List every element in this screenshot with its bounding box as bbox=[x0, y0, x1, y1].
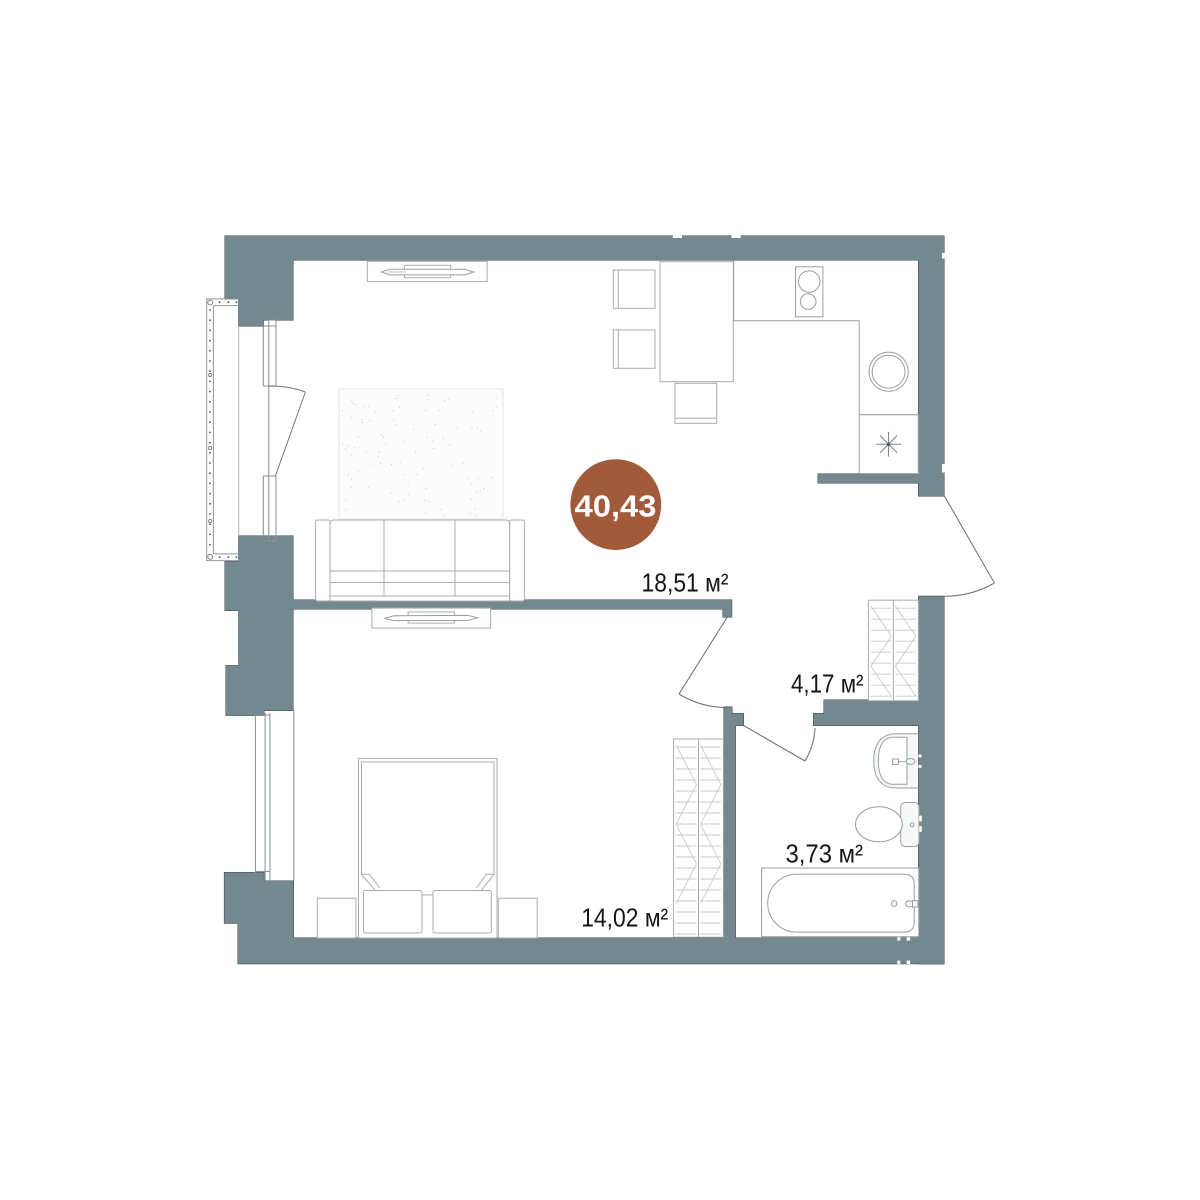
svg-text:3,73 м²: 3,73 м² bbox=[786, 839, 864, 869]
svg-text:40,43: 40,43 bbox=[575, 489, 657, 524]
svg-text:4,17 м²: 4,17 м² bbox=[791, 669, 864, 699]
svg-text:14,02 м²: 14,02 м² bbox=[581, 903, 668, 933]
svg-text:18,51 м²: 18,51 м² bbox=[642, 568, 729, 598]
